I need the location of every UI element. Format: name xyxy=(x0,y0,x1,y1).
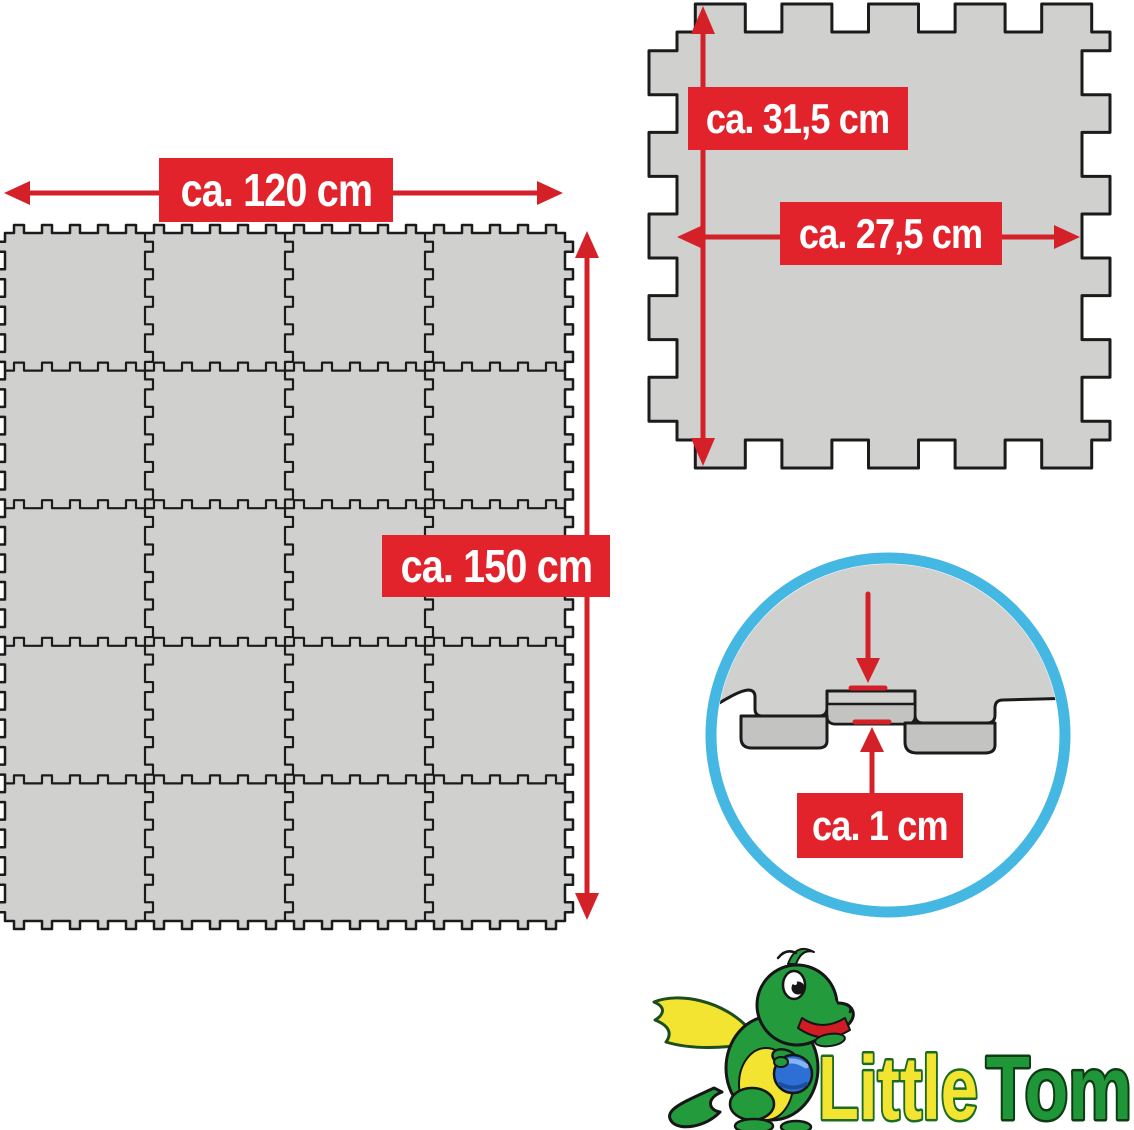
dragon-tail xyxy=(670,1088,722,1127)
grid-width-label-text: ca. 120 cm xyxy=(180,163,372,217)
product-dimension-image: Little Tom xyxy=(0,0,1134,1130)
tile-width-label: ca. 27,5 cm xyxy=(780,202,1002,265)
dragon-hand xyxy=(774,1057,788,1067)
grid-height-label-text: ca. 150 cm xyxy=(400,539,592,593)
grid-width-label: ca. 120 cm xyxy=(159,158,393,222)
grid-height-label: ca. 150 cm xyxy=(382,535,610,597)
thickness-label: ca. 1 cm xyxy=(797,793,963,858)
dragon-foot-left xyxy=(735,1119,773,1130)
tile-height-label: ca. 31,5 cm xyxy=(688,87,908,150)
thickness-label-text: ca. 1 cm xyxy=(812,802,948,850)
right-slab-front-face xyxy=(905,723,995,753)
brand-logo: Little Tom xyxy=(818,1039,1132,1130)
brand-word-tom: Tom xyxy=(986,1039,1132,1130)
dragon-foot-right xyxy=(781,1121,811,1130)
left-slab-front-face xyxy=(741,716,827,748)
tile-width-label-text: ca. 27,5 cm xyxy=(799,210,982,258)
tile-height-label-text: ca. 31,5 cm xyxy=(706,95,889,143)
brand-word-little: Little xyxy=(818,1039,978,1130)
mat-top-surface xyxy=(700,460,1080,723)
dragon-eye-glint xyxy=(793,981,797,985)
dragon-thigh xyxy=(730,1088,774,1120)
